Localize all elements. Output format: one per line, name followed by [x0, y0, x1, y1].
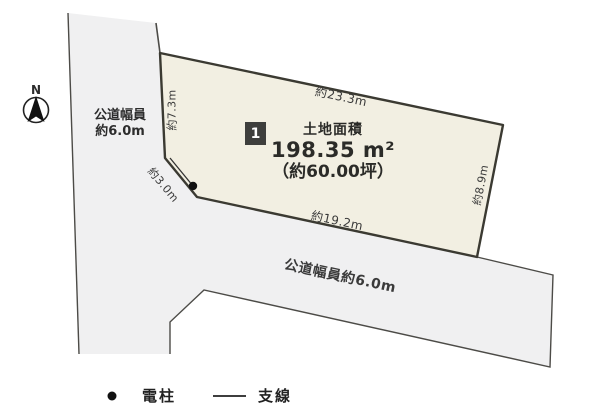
- land-area-block: 土地面積 198.35 m² （約60.00坪）: [271, 122, 395, 182]
- plot-map: N 公道幅員 約6.0m 公道幅員約6.0m 1 土地面積 198.35 m² …: [0, 0, 600, 414]
- legend-pole-dot-icon: [108, 392, 117, 401]
- vertical-road-label: 公道幅員 約6.0m: [94, 108, 146, 140]
- utility-pole-dot: [189, 182, 197, 190]
- dimension-left: 約7.3m: [165, 89, 178, 130]
- plot-map-svg: [0, 0, 600, 414]
- legend-wire-label: 支線: [258, 387, 292, 405]
- compass-icon: [24, 96, 49, 123]
- vertical-road-label-line1: 公道幅員: [94, 108, 146, 124]
- legend-pole-label: 電柱: [142, 387, 176, 405]
- north-label: N: [31, 83, 41, 97]
- land-area-title: 土地面積: [271, 122, 395, 139]
- land-area-tsubo: （約60.00坪）: [271, 162, 395, 182]
- land-area-m2: 198.35 m²: [271, 139, 395, 162]
- parcel-number-badge: 1: [245, 122, 266, 145]
- vertical-road-label-line2: 約6.0m: [94, 124, 146, 140]
